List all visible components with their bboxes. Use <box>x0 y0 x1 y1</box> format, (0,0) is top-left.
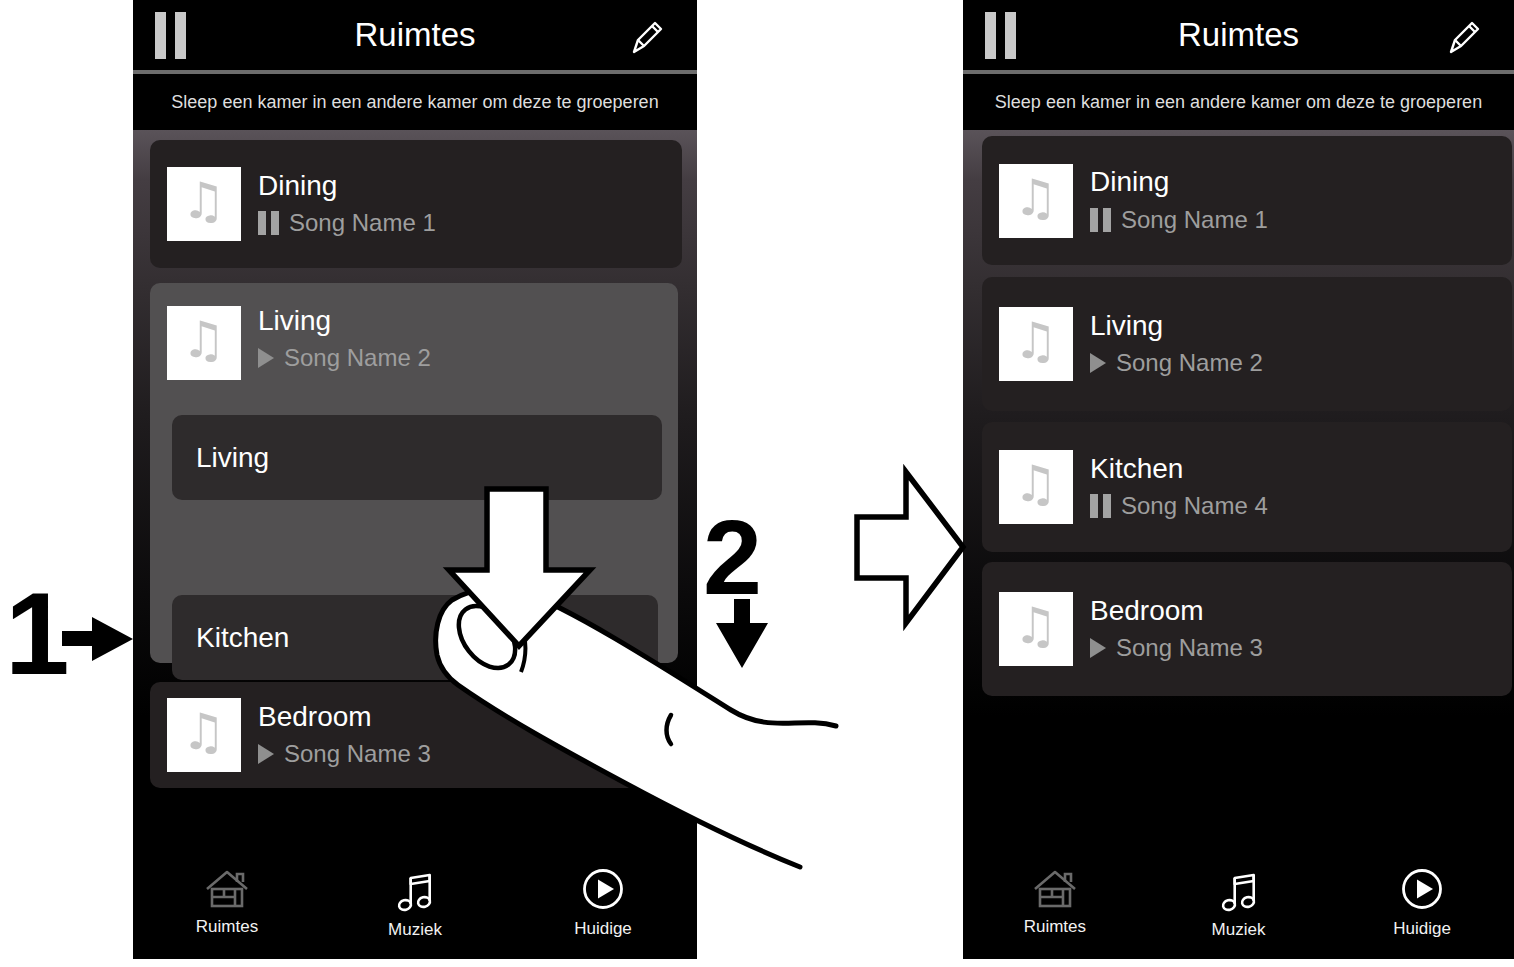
play-triangle-icon <box>1090 353 1106 373</box>
room-name: Bedroom <box>1090 596 1263 625</box>
pause-bars-icon <box>1090 494 1111 518</box>
music-note-icon: ♫ <box>182 315 227 365</box>
now-playing-line: Song Name 2 <box>258 344 431 372</box>
group-hint-text: Sleep een kamer in een andere kamer om d… <box>963 74 1514 130</box>
pause-bars-icon <box>1090 208 1111 232</box>
music-note-icon <box>1219 865 1259 913</box>
song-name: Song Name 1 <box>1121 206 1268 234</box>
room-card-bedroom[interactable]: ♫ Bedroom Song Name 3 <box>150 682 682 788</box>
tab-label: Huidige <box>1393 919 1451 939</box>
room-name: Living <box>1090 311 1263 340</box>
album-art-thumbnail: ♫ <box>999 450 1073 524</box>
play-triangle-icon <box>1090 638 1106 658</box>
edit-pencil-icon[interactable] <box>625 13 667 59</box>
album-art-thumbnail: ♫ <box>999 592 1073 666</box>
pause-bars-icon <box>258 211 279 235</box>
play-triangle-icon <box>258 744 274 764</box>
room-name: Dining <box>258 171 436 200</box>
now-playing-line: Song Name 4 <box>1090 492 1268 520</box>
song-name: Song Name 3 <box>284 740 431 768</box>
album-art-thumbnail: ♫ <box>999 164 1073 238</box>
music-note-icon: ♫ <box>182 707 227 757</box>
song-name: Song Name 2 <box>1116 349 1263 377</box>
room-name: Dining <box>1090 167 1268 196</box>
room-card-living[interactable]: ♫ Living Song Name 2 <box>982 277 1512 411</box>
room-card-kitchen[interactable]: ♫ Kitchen Song Name 4 <box>982 422 1512 552</box>
album-art-thumbnail: ♫ <box>999 307 1073 381</box>
home-icon <box>204 868 250 910</box>
dragged-room-kitchen[interactable]: Kitchen <box>172 595 658 680</box>
tab-ruimtes[interactable]: Ruimtes <box>963 868 1147 937</box>
tab-label: Ruimtes <box>1024 917 1086 937</box>
header: Ruimtes <box>133 0 697 70</box>
tab-muziek[interactable]: Muziek <box>321 865 509 940</box>
now-playing-line: Song Name 3 <box>258 740 431 768</box>
instruction-figure: Ruimtes Sleep een kamer in een andere ka… <box>0 0 1514 967</box>
play-circle-icon <box>580 866 626 912</box>
music-note-icon: ♫ <box>1014 173 1059 223</box>
home-icon <box>1032 868 1078 910</box>
song-name: Song Name 3 <box>1116 634 1263 662</box>
song-name: Song Name 4 <box>1121 492 1268 520</box>
header: Ruimtes <box>963 0 1514 70</box>
right-block-arrow <box>857 472 963 623</box>
drop-zone-living[interactable]: Living <box>172 415 662 500</box>
step-number-2: 2 <box>703 504 762 610</box>
room-name: Kitchen <box>1090 454 1268 483</box>
page-title: Ruimtes <box>133 16 697 54</box>
tab-huidige[interactable]: Huidige <box>1330 866 1514 939</box>
dragged-room-label: Kitchen <box>196 622 289 654</box>
tab-label: Huidige <box>574 919 632 939</box>
tab-muziek[interactable]: Muziek <box>1147 865 1331 940</box>
tab-huidige[interactable]: Huidige <box>509 866 697 939</box>
room-card-bedroom[interactable]: ♫ Bedroom Song Name 3 <box>982 562 1512 696</box>
song-name: Song Name 1 <box>289 209 436 237</box>
now-playing-line: Song Name 1 <box>258 209 436 237</box>
page-title: Ruimtes <box>963 16 1514 54</box>
music-note-icon: ♫ <box>182 176 227 226</box>
phone-screen-after: Ruimtes Sleep een kamer in een andere ka… <box>963 0 1514 959</box>
music-note-icon: ♫ <box>1014 459 1059 509</box>
song-name: Song Name 2 <box>284 344 431 372</box>
phone-screen-before: Ruimtes Sleep een kamer in een andere ka… <box>133 0 697 959</box>
play-circle-icon <box>1399 866 1445 912</box>
now-playing-line: Song Name 2 <box>1090 349 1263 377</box>
edit-pencil-icon[interactable] <box>1442 13 1484 59</box>
play-triangle-icon <box>258 348 274 368</box>
album-art-thumbnail: ♫ <box>167 306 241 380</box>
tab-label: Muziek <box>1212 920 1266 940</box>
room-card-dining[interactable]: ♫ Dining Song Name 1 <box>150 140 682 268</box>
now-playing-line: Song Name 1 <box>1090 206 1268 234</box>
now-playing-line: Song Name 3 <box>1090 634 1263 662</box>
tab-label: Ruimtes <box>196 917 258 937</box>
room-name: Living <box>258 306 431 335</box>
tab-label: Muziek <box>388 920 442 940</box>
tab-ruimtes[interactable]: Ruimtes <box>133 868 321 937</box>
room-name: Bedroom <box>258 702 431 731</box>
bottom-tab-bar: Ruimtes Muziek Huidige <box>133 845 697 959</box>
album-art-thumbnail: ♫ <box>167 167 241 241</box>
album-art-thumbnail: ♫ <box>167 698 241 772</box>
bottom-tab-bar: Ruimtes Muziek Huidige <box>963 845 1514 959</box>
music-note-icon <box>395 865 435 913</box>
step-number-1: 1 <box>5 576 70 692</box>
group-hint-text: Sleep een kamer in een andere kamer om d… <box>133 74 697 130</box>
drop-zone-label: Living <box>196 442 269 474</box>
music-note-icon: ♫ <box>1014 601 1059 651</box>
music-note-icon: ♫ <box>1014 316 1059 366</box>
step1-right-arrow <box>62 617 133 661</box>
room-card-dining[interactable]: ♫ Dining Song Name 1 <box>982 136 1512 265</box>
